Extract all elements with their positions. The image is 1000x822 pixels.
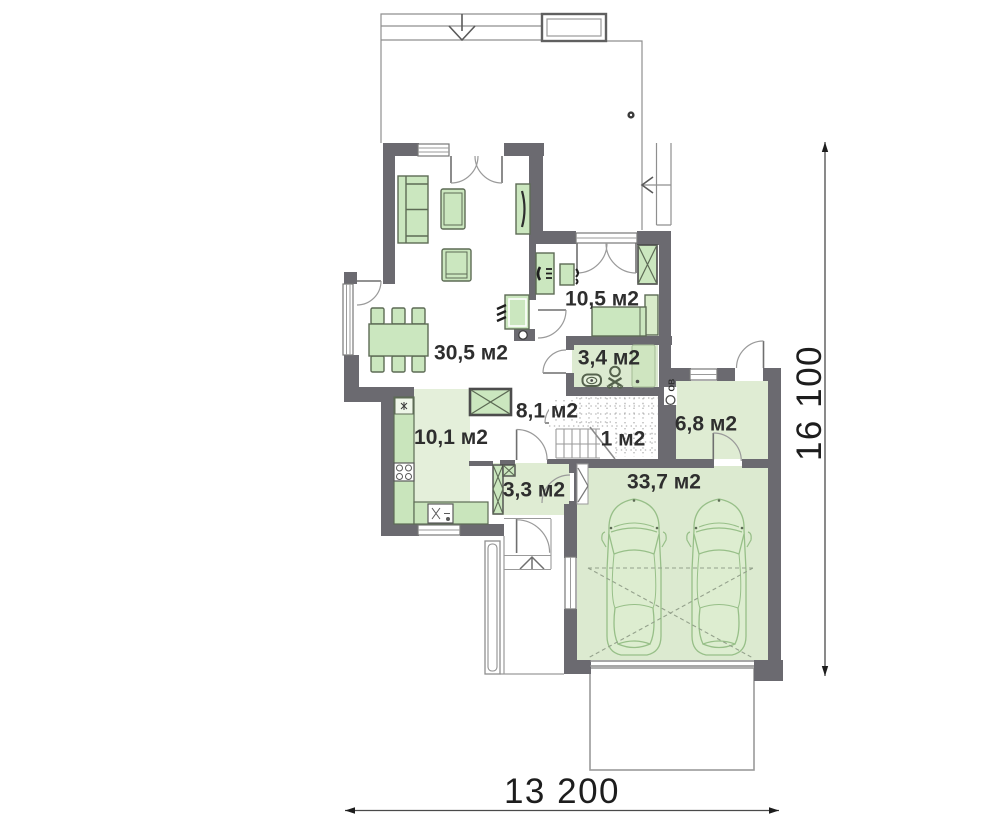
svg-text:8,1 м2: 8,1 м2 — [516, 400, 578, 423]
svg-text:30,5 м2: 30,5 м2 — [434, 342, 508, 365]
svg-text:6,8 м2: 6,8 м2 — [675, 413, 737, 436]
svg-text:33,7 м2: 33,7 м2 — [627, 471, 701, 494]
svg-text:13 200: 13 200 — [504, 772, 620, 811]
svg-text:10,1 м2: 10,1 м2 — [414, 426, 488, 449]
svg-text:ОВ: ОВ — [667, 379, 677, 392]
svg-text:3,4 м2: 3,4 м2 — [578, 347, 640, 370]
svg-text:16 100: 16 100 — [790, 345, 829, 461]
svg-text:10,5 м2: 10,5 м2 — [565, 288, 639, 311]
svg-text:3,3 м2: 3,3 м2 — [503, 479, 565, 502]
svg-text:1 м2: 1 м2 — [601, 428, 646, 451]
